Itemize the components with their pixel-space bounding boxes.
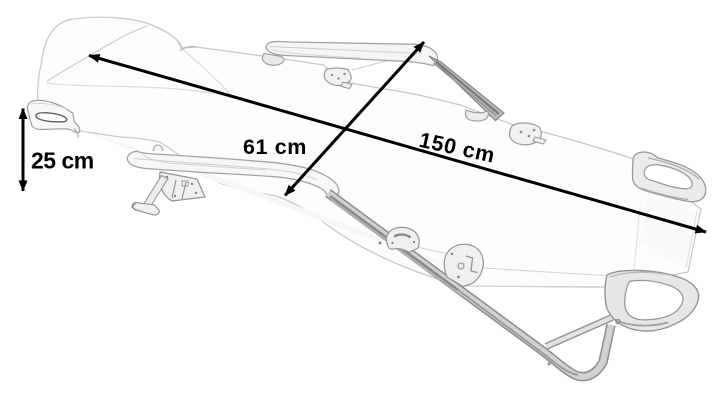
svg-text:61 cm: 61 cm — [243, 135, 307, 159]
svg-text:25 cm: 25 cm — [31, 148, 94, 174]
